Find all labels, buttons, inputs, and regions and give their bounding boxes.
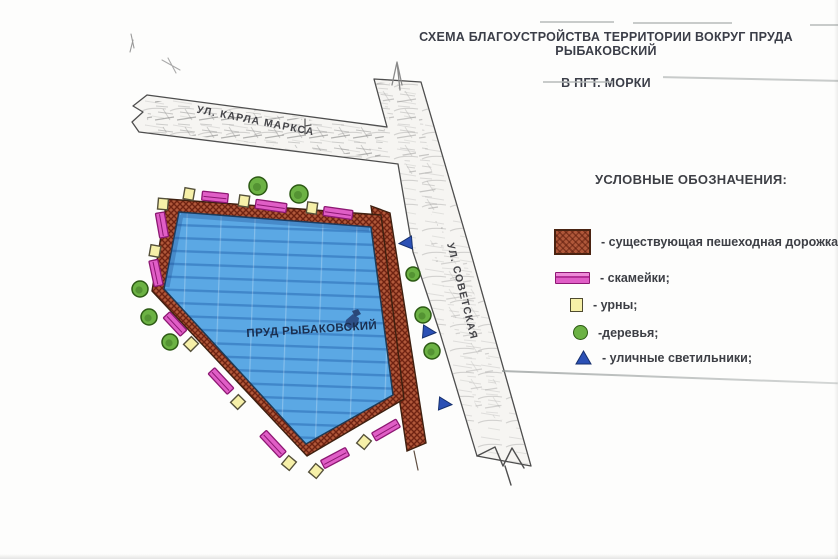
title-line-1: СХЕМА БЛАГОУСТРОЙСТВА ТЕРРИТОРИИ ВОКРУГ … (378, 30, 834, 58)
urn-symbol (282, 456, 297, 471)
legend-item-tree: -деревья; (540, 325, 838, 340)
urn-swatch-icon (570, 298, 583, 312)
urn-symbol (357, 435, 372, 450)
tree-symbol (406, 267, 420, 281)
bench-symbol (260, 430, 286, 457)
legend-item-label: - существующая пешеходная дорожка; (601, 235, 838, 249)
path-end-tick (414, 451, 418, 470)
scan-edge-shadow (0, 554, 838, 559)
street-light-symbol (438, 397, 452, 411)
urn-symbol (183, 188, 195, 201)
legend-item-label: -деревья; (598, 326, 658, 340)
bench-symbol (202, 191, 229, 203)
bench-symbol (372, 419, 401, 441)
bench-symbol (321, 447, 350, 468)
tree-symbol (290, 185, 308, 203)
tree-symbol (162, 334, 178, 350)
path-swatch-icon (554, 229, 591, 255)
scan-dash (543, 81, 613, 83)
urn-symbol (309, 464, 324, 479)
scan-dash (633, 22, 732, 24)
road-shading-karla-marksa (145, 100, 385, 158)
tree-swatch-icon (573, 325, 588, 340)
urn-symbol (306, 202, 317, 214)
scanned-plan-page: УЛ. КАРЛА МАРКСА УЛ. СОВЕТСКАЯ ПРУД РЫБА… (0, 0, 838, 559)
legend-item-label: - уличные светильники; (602, 351, 752, 365)
scan-dash (540, 21, 614, 23)
pencil-scribble-2 (162, 58, 180, 73)
legend-item-bench: - скамейки; (540, 271, 838, 285)
legend-title: УСЛОВНЫЕ ОБОЗНАЧЕНИЯ: (595, 172, 838, 187)
legend: УСЛОВНЫЕ ОБОЗНАЧЕНИЯ: - существующая пеш… (540, 172, 838, 365)
tree-symbol (415, 307, 431, 323)
street-light-symbol (398, 236, 412, 250)
legend-item-path: - существующая пешеходная дорожка; (540, 229, 838, 255)
tree-symbol (132, 281, 148, 297)
urn-symbol (158, 198, 169, 210)
legend-item-urn: - урны; (540, 298, 838, 312)
tree-symbol (424, 343, 440, 359)
pencil-scribble-1 (130, 34, 134, 52)
light-swatch-icon (575, 350, 592, 365)
urn-symbol (149, 245, 161, 258)
street-light-symbol (422, 325, 436, 339)
legend-item-label: - скамейки; (600, 271, 670, 285)
urn-symbol (238, 195, 249, 207)
tree-symbol (141, 309, 157, 325)
legend-item-light: - уличные светильники; (540, 350, 838, 365)
urn-symbol (231, 395, 246, 410)
scan-edge-shadow (834, 0, 838, 559)
tree-symbol (249, 177, 267, 195)
bench-swatch-icon (555, 272, 590, 284)
legend-item-label: - урны; (593, 298, 637, 312)
